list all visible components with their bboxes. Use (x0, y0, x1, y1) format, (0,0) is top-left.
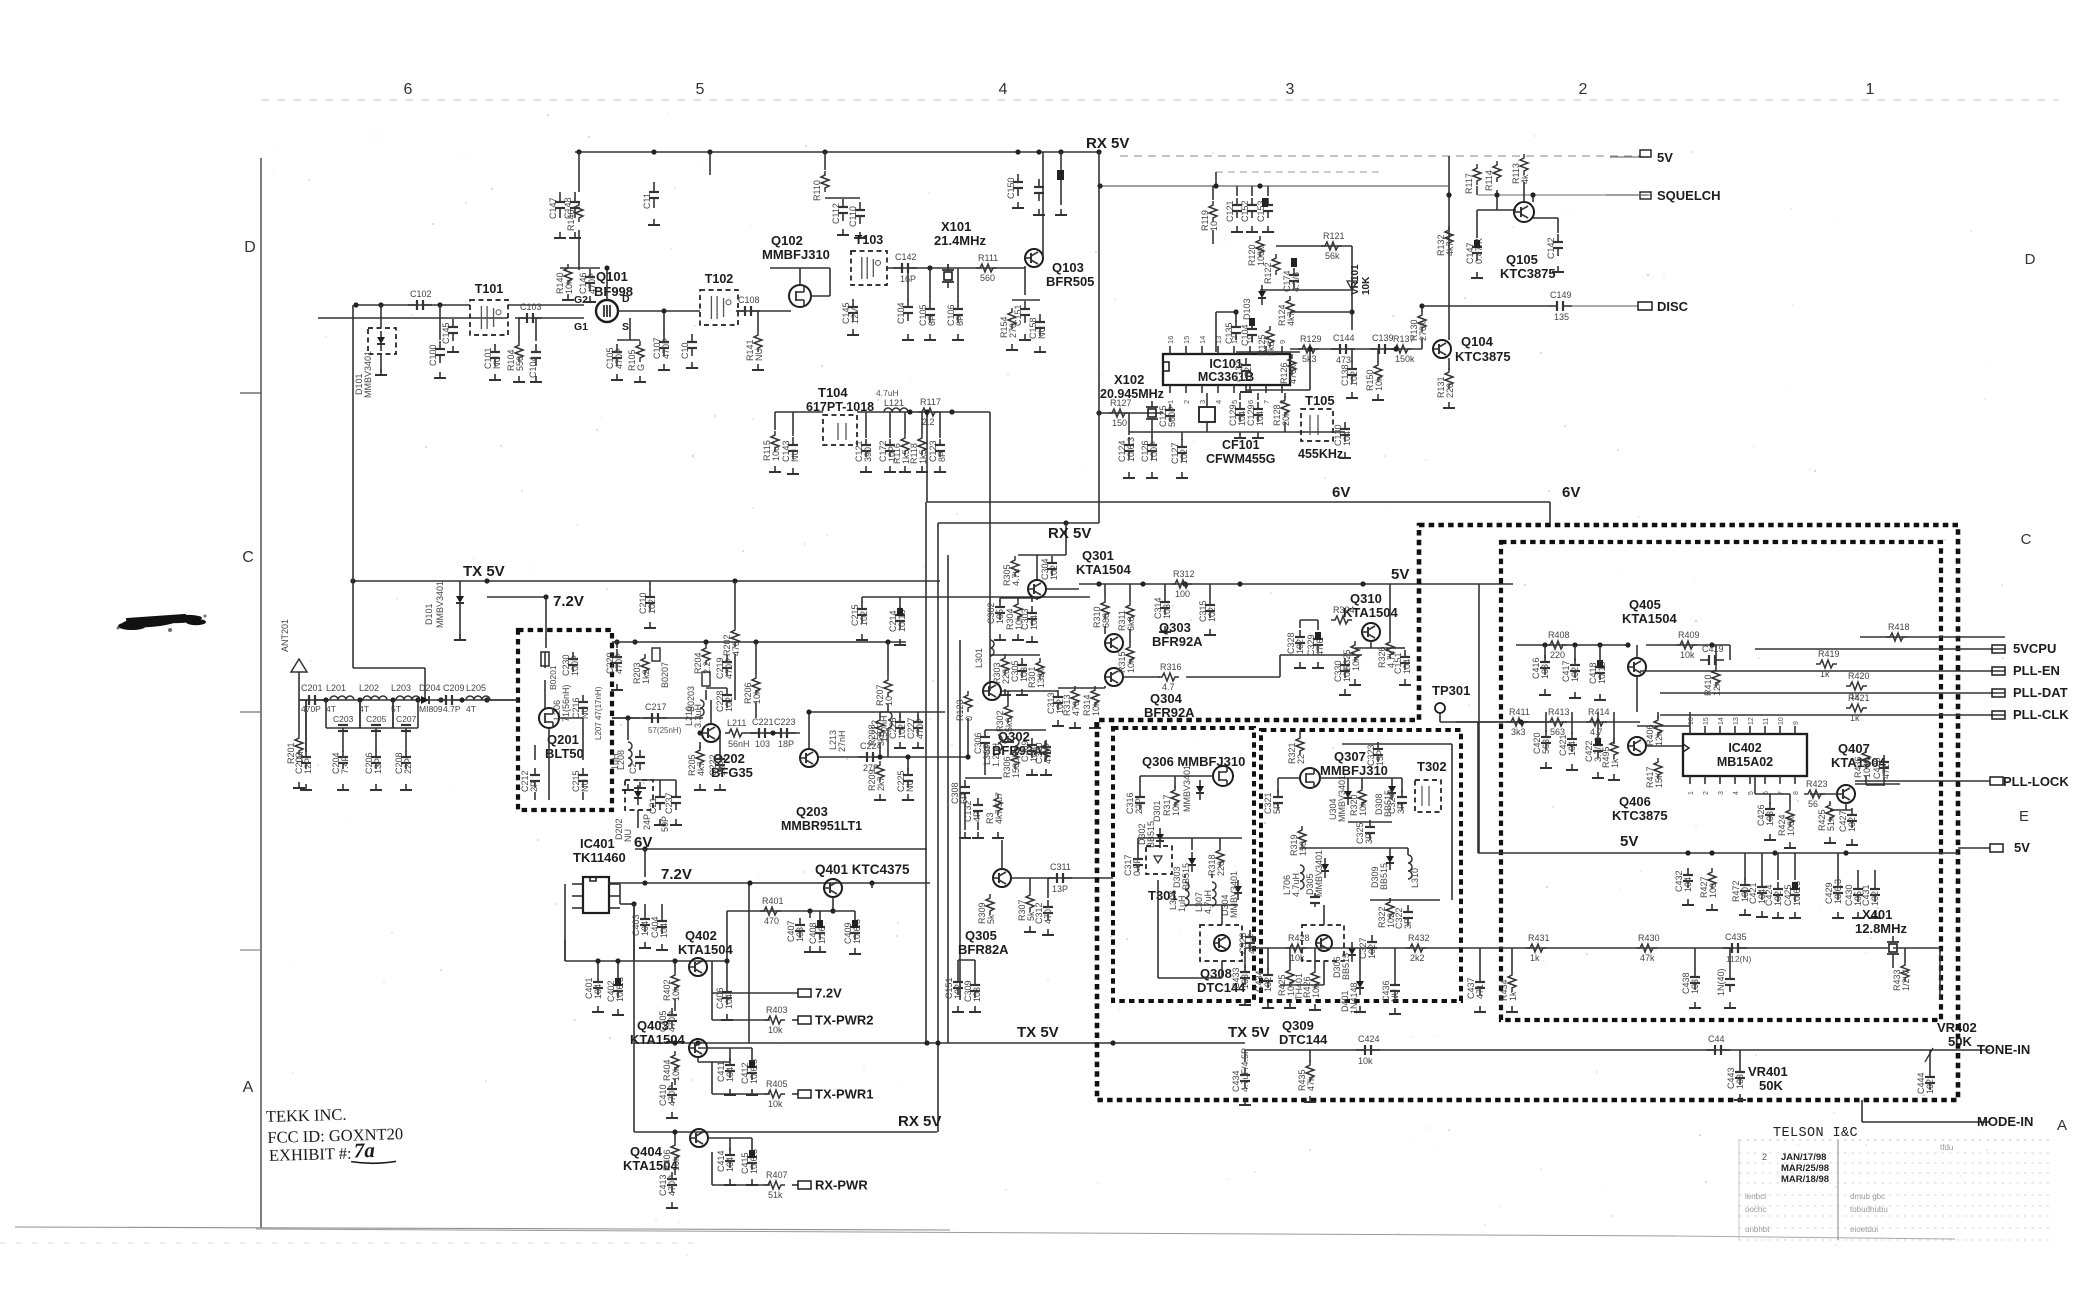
svg-text:22P: 22P (1134, 798, 1144, 814)
svg-text:D: D (622, 293, 630, 305)
svg-text:R421: R421 (1848, 693, 1870, 703)
svg-text:R409: R409 (1678, 630, 1700, 640)
svg-text:9: 9 (1278, 340, 1287, 344)
svg-text:1uH: 1uH (610, 753, 620, 770)
svg-text:10k: 10k (1311, 983, 1321, 998)
svg-text:C11: C11 (642, 193, 652, 209)
svg-text:G2: G2 (574, 294, 588, 306)
svg-text:150: 150 (1112, 418, 1127, 428)
svg-text:470P: 470P (667, 1085, 677, 1106)
svg-text:R432: R432 (1408, 933, 1430, 943)
svg-text:CFWM455G: CFWM455G (1206, 452, 1275, 466)
svg-text:ANT201: ANT201 (280, 619, 290, 652)
svg-text:10k: 10k (768, 1025, 783, 1035)
svg-text:C139: C139 (1372, 333, 1394, 343)
svg-text:C104: C104 (896, 302, 906, 324)
svg-text:BFR92A: BFR92A (1152, 634, 1203, 649)
svg-text:Q104: Q104 (1461, 334, 1494, 349)
svg-text:KTA1504: KTA1504 (1076, 562, 1131, 577)
svg-text:R431: R431 (1528, 933, 1550, 943)
svg-text:135: 135 (1554, 312, 1569, 322)
svg-text:57(25nH): 57(25nH) (648, 726, 682, 735)
svg-text:104: 104 (724, 994, 734, 1009)
svg-text:R411: R411 (1509, 707, 1530, 717)
svg-text:1k: 1k (1530, 953, 1540, 963)
svg-text:T302: T302 (1417, 759, 1447, 774)
svg-text:2.2: 2.2 (922, 417, 935, 427)
svg-text:C311: C311 (1050, 862, 1071, 872)
svg-text:12.8MHz: 12.8MHz (1855, 921, 1908, 936)
svg-text:15K: 15K (1654, 772, 1664, 788)
svg-text:C100: C100 (428, 344, 438, 366)
svg-text:TP301: TP301 (1432, 683, 1470, 698)
svg-text:C201: C201 (301, 683, 323, 693)
svg-text:RX 5V: RX 5V (898, 1113, 941, 1130)
svg-text:DISC: DISC (1657, 299, 1689, 314)
svg-text:R324: R324 (1333, 605, 1355, 615)
svg-text:2: 2 (1762, 1152, 1767, 1162)
svg-text:2k7: 2k7 (876, 776, 886, 791)
svg-text:L203: L203 (391, 683, 411, 693)
svg-text:MMBV3401: MMBV3401 (363, 351, 373, 398)
svg-text:NU: NU (754, 348, 764, 361)
svg-text:NU: NU (790, 449, 800, 462)
svg-text:4.7uH: 4.7uH (1203, 890, 1213, 914)
svg-text:MODE-IN: MODE-IN (1977, 1114, 2033, 1129)
svg-text:5: 5 (1748, 791, 1755, 795)
svg-text:C2: C2 (628, 762, 638, 774)
svg-text:eioetdui: eioetdui (1850, 1225, 1878, 1234)
svg-text:10k: 10k (1680, 650, 1695, 660)
svg-text:Q307: Q307 (1334, 749, 1366, 764)
svg-text:NU: NU (623, 829, 633, 842)
svg-text:13P: 13P (373, 758, 383, 774)
svg-text:tobudhubu: tobudhubu (1850, 1205, 1888, 1214)
svg-text:D103: D103 (1242, 298, 1252, 320)
svg-text:D101: D101 (424, 603, 434, 625)
svg-text:3k3: 3k3 (876, 731, 886, 746)
svg-text:56k: 56k (1325, 251, 1340, 261)
svg-text:Q404: Q404 (630, 1144, 663, 1159)
svg-text:9: 9 (1793, 721, 1800, 725)
svg-text:104: 104 (1029, 615, 1039, 630)
svg-text:104: 104 (725, 1157, 735, 1172)
svg-text:27nH: 27nH (837, 730, 847, 752)
svg-text:4k7: 4k7 (1445, 241, 1455, 256)
svg-text:15: 15 (1182, 336, 1191, 344)
svg-text:102: 102 (859, 611, 869, 626)
svg-text:4T: 4T (326, 704, 336, 714)
svg-text:oochc: oochc (1745, 1205, 1766, 1214)
svg-text:C145: C145 (441, 322, 451, 344)
svg-text:NU: NU (580, 779, 590, 792)
svg-text:102: 102 (1243, 367, 1253, 382)
svg-text:132k: 132k (1036, 668, 1046, 688)
svg-text:104: 104 (593, 984, 603, 999)
svg-text:R420: R420 (1848, 671, 1870, 681)
svg-text:560: 560 (980, 273, 995, 283)
svg-text:C142: C142 (895, 252, 917, 262)
svg-text:C205: C205 (366, 714, 387, 724)
svg-text:14: 14 (1198, 336, 1207, 344)
svg-text:47k: 47k (1306, 1076, 1316, 1091)
svg-text:C144: C144 (1333, 333, 1355, 343)
svg-text:IC402: IC402 (1728, 741, 1761, 755)
svg-text:R430: R430 (1638, 933, 1660, 943)
svg-text:47uF: 47uF (1247, 933, 1257, 954)
svg-text:Q203: Q203 (796, 804, 828, 819)
svg-text:103: 103 (1540, 664, 1550, 679)
svg-text:5VCPU: 5VCPU (2013, 641, 2056, 656)
svg-text:2: 2 (1182, 400, 1191, 404)
svg-text:3: 3 (1198, 400, 1207, 404)
svg-text:100k: 100k (1862, 758, 1872, 778)
svg-text:102: 102 (1179, 449, 1189, 464)
svg-text:T104: T104 (818, 385, 848, 400)
svg-text:Q407: Q407 (1838, 741, 1870, 756)
svg-text:T105: T105 (1305, 393, 1335, 408)
svg-text:MMBV3401: MMBV3401 (1314, 850, 1324, 897)
svg-text:0.5P: 0.5P (1132, 857, 1142, 876)
svg-text:Q103: Q103 (1052, 260, 1084, 275)
svg-text:470: 470 (1043, 909, 1053, 924)
svg-text:102: 102 (1349, 371, 1359, 386)
svg-text:1k: 1k (1508, 991, 1518, 1001)
svg-text:15P: 15P (717, 760, 727, 776)
svg-text:1/2W: 1/2W (1901, 969, 1911, 991)
svg-text:X102: X102 (1114, 372, 1144, 387)
svg-text:R413: R413 (1548, 707, 1570, 717)
svg-text:10k: 10k (1126, 658, 1136, 673)
svg-text:E: E (2019, 808, 2029, 825)
svg-text:BFR82A: BFR82A (958, 942, 1009, 957)
svg-text:R114: R114 (1484, 170, 1494, 191)
svg-text:RX 5V: RX 5V (1086, 135, 1129, 152)
svg-text:390: 390 (863, 447, 873, 462)
svg-text:D204: D204 (419, 683, 441, 693)
svg-text:5V: 5V (1657, 150, 1673, 165)
svg-text:2P: 2P (529, 781, 539, 792)
svg-text:G: G (636, 364, 646, 371)
svg-text:102: 102 (724, 697, 734, 712)
svg-text:104: 104 (725, 1067, 735, 1082)
svg-text:1: 1 (1166, 400, 1175, 404)
svg-text:15P: 15P (1375, 750, 1385, 766)
svg-text:RX 5V: RX 5V (1048, 525, 1091, 542)
svg-text:5: 5 (696, 81, 705, 98)
svg-text:102: 102 (1367, 944, 1377, 959)
svg-text:103: 103 (972, 987, 982, 1002)
svg-text:102: 102 (1049, 565, 1059, 580)
svg-text:TX 5V: TX 5V (463, 563, 505, 580)
svg-text:12P: 12P (303, 758, 313, 774)
svg-text:C135: C135 (1224, 322, 1234, 344)
svg-text:10k: 10k (1358, 801, 1368, 816)
svg-text:PLL-LOCK: PLL-LOCK (2003, 774, 2069, 789)
svg-text:10k: 10k (671, 1156, 681, 1171)
svg-text:C221: C221 (752, 717, 774, 727)
svg-text:Q101: Q101 (596, 269, 628, 284)
svg-text:220: 220 (1550, 650, 1565, 660)
svg-text:102: 102 (1295, 639, 1305, 654)
svg-text:1k2: 1k2 (641, 669, 651, 684)
svg-text:1k: 1k (1850, 713, 1860, 723)
svg-text:103: 103 (1765, 811, 1775, 826)
svg-text:4: 4 (999, 81, 1008, 98)
svg-text:BB515: BB515 (1341, 953, 1351, 980)
svg-text:R127: R127 (1110, 398, 1132, 408)
svg-text:C142: C142 (1546, 237, 1556, 259)
svg-text:470k: 470k (1288, 364, 1298, 384)
svg-text:KTA1504: KTA1504 (678, 942, 733, 957)
svg-text:C121: C121 (1225, 200, 1235, 222)
svg-text:D: D (2025, 251, 2036, 268)
svg-text:6V: 6V (1332, 484, 1350, 501)
svg-text:563: 563 (1541, 739, 1551, 754)
svg-text:L211: L211 (727, 718, 746, 728)
svg-text:100: 100 (1175, 589, 1190, 599)
svg-text:4T: 4T (466, 704, 476, 714)
svg-text:10k: 10k (1374, 376, 1384, 391)
svg-text:SQUELCH: SQUELCH (1657, 188, 1721, 203)
svg-text:KTC3875: KTC3875 (1455, 349, 1511, 364)
svg-text:BB515: BB515 (1379, 863, 1389, 890)
svg-text:47/6: 47/6 (1315, 638, 1325, 656)
svg-text:1k: 1k (1610, 758, 1620, 768)
svg-text:T101: T101 (475, 282, 504, 296)
svg-text:471: 471 (1475, 984, 1485, 999)
svg-text:4k7: 4k7 (1286, 311, 1296, 326)
svg-text:6V: 6V (1562, 484, 1580, 501)
svg-text:0: 0 (964, 716, 974, 721)
svg-text:PLL-CLK: PLL-CLK (2013, 707, 2069, 722)
svg-text:R403: R403 (766, 1005, 788, 1015)
svg-text:C: C (242, 549, 254, 566)
svg-text:51k: 51k (768, 1190, 783, 1200)
svg-text:DTC144: DTC144 (1279, 1032, 1328, 1047)
svg-text:Q406: Q406 (1619, 794, 1651, 809)
svg-text:MMBV3401: MMBV3401 (1337, 775, 1347, 822)
svg-text:R117: R117 (920, 397, 941, 407)
svg-text:4k7: 4k7 (696, 761, 706, 776)
svg-text:6: 6 (404, 81, 413, 98)
svg-text:C102: C102 (410, 289, 432, 299)
svg-text:1/16: 1/16 (817, 926, 827, 944)
svg-text:104: 104 (1567, 741, 1577, 756)
svg-text:56: 56 (1808, 799, 1818, 809)
svg-text:102: 102 (1207, 607, 1217, 622)
svg-text:10k: 10k (1358, 1056, 1373, 1066)
svg-text:S: S (622, 321, 629, 333)
svg-text:10/6.3: 10/6.3 (1126, 437, 1136, 462)
svg-text:5: 5 (1230, 400, 1239, 404)
svg-text:103: 103 (1240, 974, 1250, 989)
svg-text:104: 104 (640, 921, 650, 936)
svg-text:3.3uH: 3.3uH (693, 704, 703, 728)
svg-text:102: 102 (647, 599, 657, 614)
svg-text:BFR505: BFR505 (1046, 274, 1094, 289)
svg-text:MAR/25/98: MAR/25/98 (1781, 1163, 1829, 1174)
svg-text:Q102: Q102 (771, 233, 803, 248)
svg-text:TX-PWR1: TX-PWR1 (815, 1087, 874, 1102)
svg-text:50K: 50K (1759, 1078, 1783, 1093)
svg-text:7: 7 (1262, 400, 1271, 404)
svg-text:10k: 10k (564, 279, 574, 294)
svg-text:B0207: B0207 (660, 662, 670, 688)
svg-text:TK11460: TK11460 (573, 850, 626, 865)
svg-text:4.7uH: 4.7uH (876, 388, 899, 398)
svg-text:470: 470 (1071, 701, 1081, 716)
svg-text:dmub gbc: dmub gbc (1850, 1192, 1885, 1201)
svg-text:1k: 1k (1820, 669, 1830, 679)
svg-text:Q304: Q304 (1150, 691, 1183, 706)
svg-text:Q402: Q402 (685, 928, 717, 943)
svg-text:MMBFJ310: MMBFJ310 (762, 247, 830, 262)
svg-text:TELSON I&C: TELSON I&C (1773, 1126, 1858, 1141)
svg-text:C152: C152 (1240, 200, 1250, 222)
svg-text:15: 15 (1703, 717, 1710, 725)
svg-text:G1: G1 (574, 321, 588, 333)
svg-text:220: 220 (1445, 383, 1455, 398)
svg-text:D: D (244, 239, 256, 256)
svg-text:51k: 51k (1826, 816, 1836, 831)
svg-text:CF101: CF101 (1222, 438, 1260, 452)
svg-text:1: 1 (1866, 81, 1875, 98)
svg-text:13: 13 (1733, 717, 1740, 725)
svg-text:T102: T102 (705, 272, 734, 286)
svg-text:102: 102 (1847, 817, 1857, 832)
svg-text:102: 102 (1870, 891, 1880, 906)
svg-text:R419: R419 (1818, 649, 1840, 659)
svg-text:103: 103 (1735, 1074, 1745, 1089)
svg-text:EXHIBIT #:: EXHIBIT #: (269, 1144, 352, 1165)
svg-text:470P: 470P (587, 273, 597, 294)
svg-text:4: 4 (1733, 791, 1740, 795)
svg-text:5k8: 5k8 (1266, 341, 1276, 356)
svg-text:Q105: Q105 (1506, 252, 1538, 267)
svg-text:4.7uF/4.5P: 4.7uF/4.5P (1240, 1048, 1250, 1092)
svg-text:C217: C217 (645, 702, 667, 712)
svg-text:103: 103 (1690, 979, 1700, 994)
svg-text:X401: X401 (1862, 907, 1892, 922)
svg-text:R428: R428 (1288, 933, 1310, 943)
svg-text:470: 470 (731, 641, 741, 656)
svg-text:3P: 3P (1364, 833, 1374, 844)
svg-text:MMBR951LT1: MMBR951LT1 (781, 819, 862, 833)
svg-text:150k: 150k (1395, 354, 1415, 364)
svg-text:C10: C10 (680, 342, 690, 359)
svg-text:16: 16 (1166, 336, 1175, 344)
svg-text:lenbct: lenbct (1745, 1192, 1767, 1201)
svg-text:3: 3 (1718, 791, 1725, 795)
svg-text:22P: 22P (403, 758, 413, 774)
svg-text:C223: C223 (774, 717, 796, 727)
svg-text:T103: T103 (855, 233, 884, 247)
svg-text:12: 12 (1748, 717, 1755, 725)
svg-text:PLL-DAT: PLL-DAT (2013, 685, 2068, 700)
svg-text:2k2: 2k2 (1410, 953, 1425, 963)
svg-text:1: 1 (1688, 791, 1695, 795)
svg-text:R405: R405 (766, 1079, 788, 1089)
svg-text:C424: C424 (1358, 1034, 1380, 1044)
svg-text:R121: R121 (1323, 231, 1345, 241)
svg-text:12k: 12k (1654, 731, 1664, 746)
svg-text:102: 102 (1263, 977, 1273, 992)
svg-text:220: 220 (1216, 861, 1226, 876)
svg-text:JAN/17/98: JAN/17/98 (1781, 1152, 1826, 1163)
svg-text:VR402: VR402 (1937, 1020, 1977, 1035)
svg-text:3P: 3P (1396, 803, 1406, 814)
svg-text:21.4MHz: 21.4MHz (934, 233, 987, 248)
svg-text:4: 4 (1214, 400, 1223, 404)
svg-text:16: 16 (1688, 717, 1695, 725)
svg-text:IC401: IC401 (580, 836, 615, 851)
svg-text:MMBV3401: MMBV3401 (1229, 871, 1239, 918)
svg-text:470P: 470P (301, 704, 321, 714)
svg-text:C104: C104 (1240, 324, 1250, 346)
svg-text:MB15A02: MB15A02 (1717, 755, 1773, 769)
svg-text:473: 473 (1336, 355, 1351, 365)
svg-text:10k: 10k (752, 689, 762, 704)
svg-text:470P: 470P (614, 653, 624, 674)
svg-text:14: 14 (1718, 717, 1725, 725)
svg-text:C149: C149 (1550, 290, 1572, 300)
svg-text:C209: C209 (443, 683, 465, 693)
svg-text:A: A (243, 1079, 254, 1096)
svg-text:10/6.3: 10/6.3 (1833, 879, 1843, 904)
svg-text:R146: R146 (566, 209, 576, 231)
svg-text:3P: 3P (1403, 918, 1413, 929)
svg-text:Q305: Q305 (965, 928, 997, 943)
svg-text:1N4148: 1N4148 (1349, 982, 1359, 1014)
svg-text:103: 103 (795, 927, 805, 942)
svg-text:10k: 10k (768, 1099, 783, 1109)
svg-text:20k: 20k (1281, 411, 1291, 426)
svg-text:100k: 100k (1786, 816, 1796, 836)
svg-text:Q303: Q303 (1159, 620, 1191, 635)
svg-text:270k: 270k (1418, 321, 1428, 341)
svg-text:7.2V: 7.2V (553, 593, 584, 610)
svg-text:102: 102 (1570, 667, 1580, 682)
svg-text:471: 471 (1881, 764, 1891, 779)
svg-text:KTC3875: KTC3875 (1612, 808, 1668, 823)
svg-text:50K: 50K (1948, 1034, 1972, 1049)
svg-text:680: 680 (1101, 613, 1111, 628)
svg-text:6: 6 (1246, 400, 1255, 404)
svg-text:10k: 10k (671, 986, 681, 1001)
svg-text:12V: 12V (850, 308, 860, 324)
svg-text:C: C (2021, 531, 2032, 548)
svg-text:B0201: B0201 (548, 665, 558, 690)
svg-text:PLL-EN: PLL-EN (2013, 663, 2060, 678)
svg-text:BB515: BB515 (1146, 821, 1156, 848)
svg-text:Q301: Q301 (1082, 548, 1114, 563)
svg-text:R129: R129 (1300, 334, 1322, 344)
svg-text:L310: L310 (1410, 868, 1420, 888)
svg-text:550: 550 (515, 356, 525, 371)
svg-text:102: 102 (1342, 667, 1352, 682)
svg-text:R423: R423 (1806, 779, 1828, 789)
svg-text:4.7: 4.7 (1162, 682, 1175, 692)
svg-text:6P: 6P (927, 315, 937, 326)
svg-text:100: 100 (1708, 883, 1718, 898)
svg-text:KTA1504: KTA1504 (630, 1032, 685, 1047)
svg-text:5V: 5V (2014, 840, 2030, 855)
svg-text:R407: R407 (766, 1170, 788, 1180)
svg-text:59P: 59P (660, 816, 670, 832)
svg-text:KTA1504: KTA1504 (1622, 611, 1677, 626)
svg-text:104: 104 (659, 923, 669, 938)
